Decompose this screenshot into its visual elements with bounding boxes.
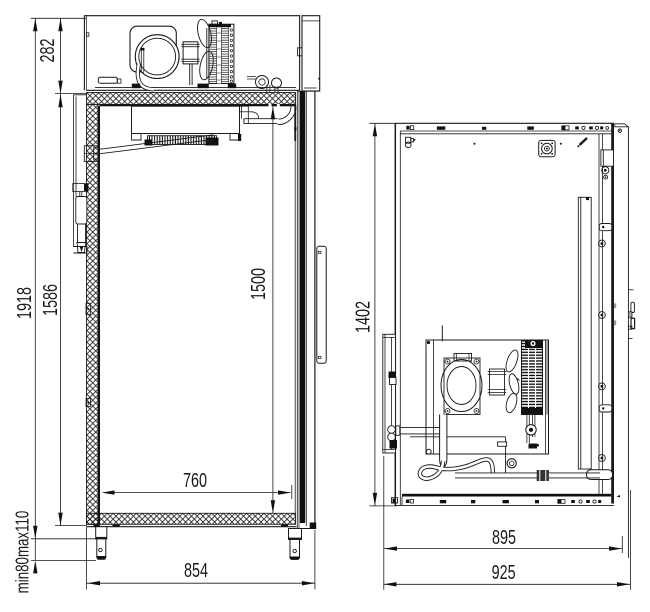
svg-text:895: 895 <box>492 526 516 549</box>
svg-text:1586: 1586 <box>39 284 62 316</box>
svg-text:760: 760 <box>183 469 207 492</box>
svg-text:854: 854 <box>184 559 208 582</box>
svg-text:282: 282 <box>36 38 59 62</box>
svg-text:1402: 1402 <box>351 301 374 333</box>
svg-text:min80max110: min80max110 <box>12 511 33 594</box>
svg-text:1918: 1918 <box>13 287 36 319</box>
svg-text:925: 925 <box>492 561 516 584</box>
svg-text:1500: 1500 <box>247 268 270 300</box>
